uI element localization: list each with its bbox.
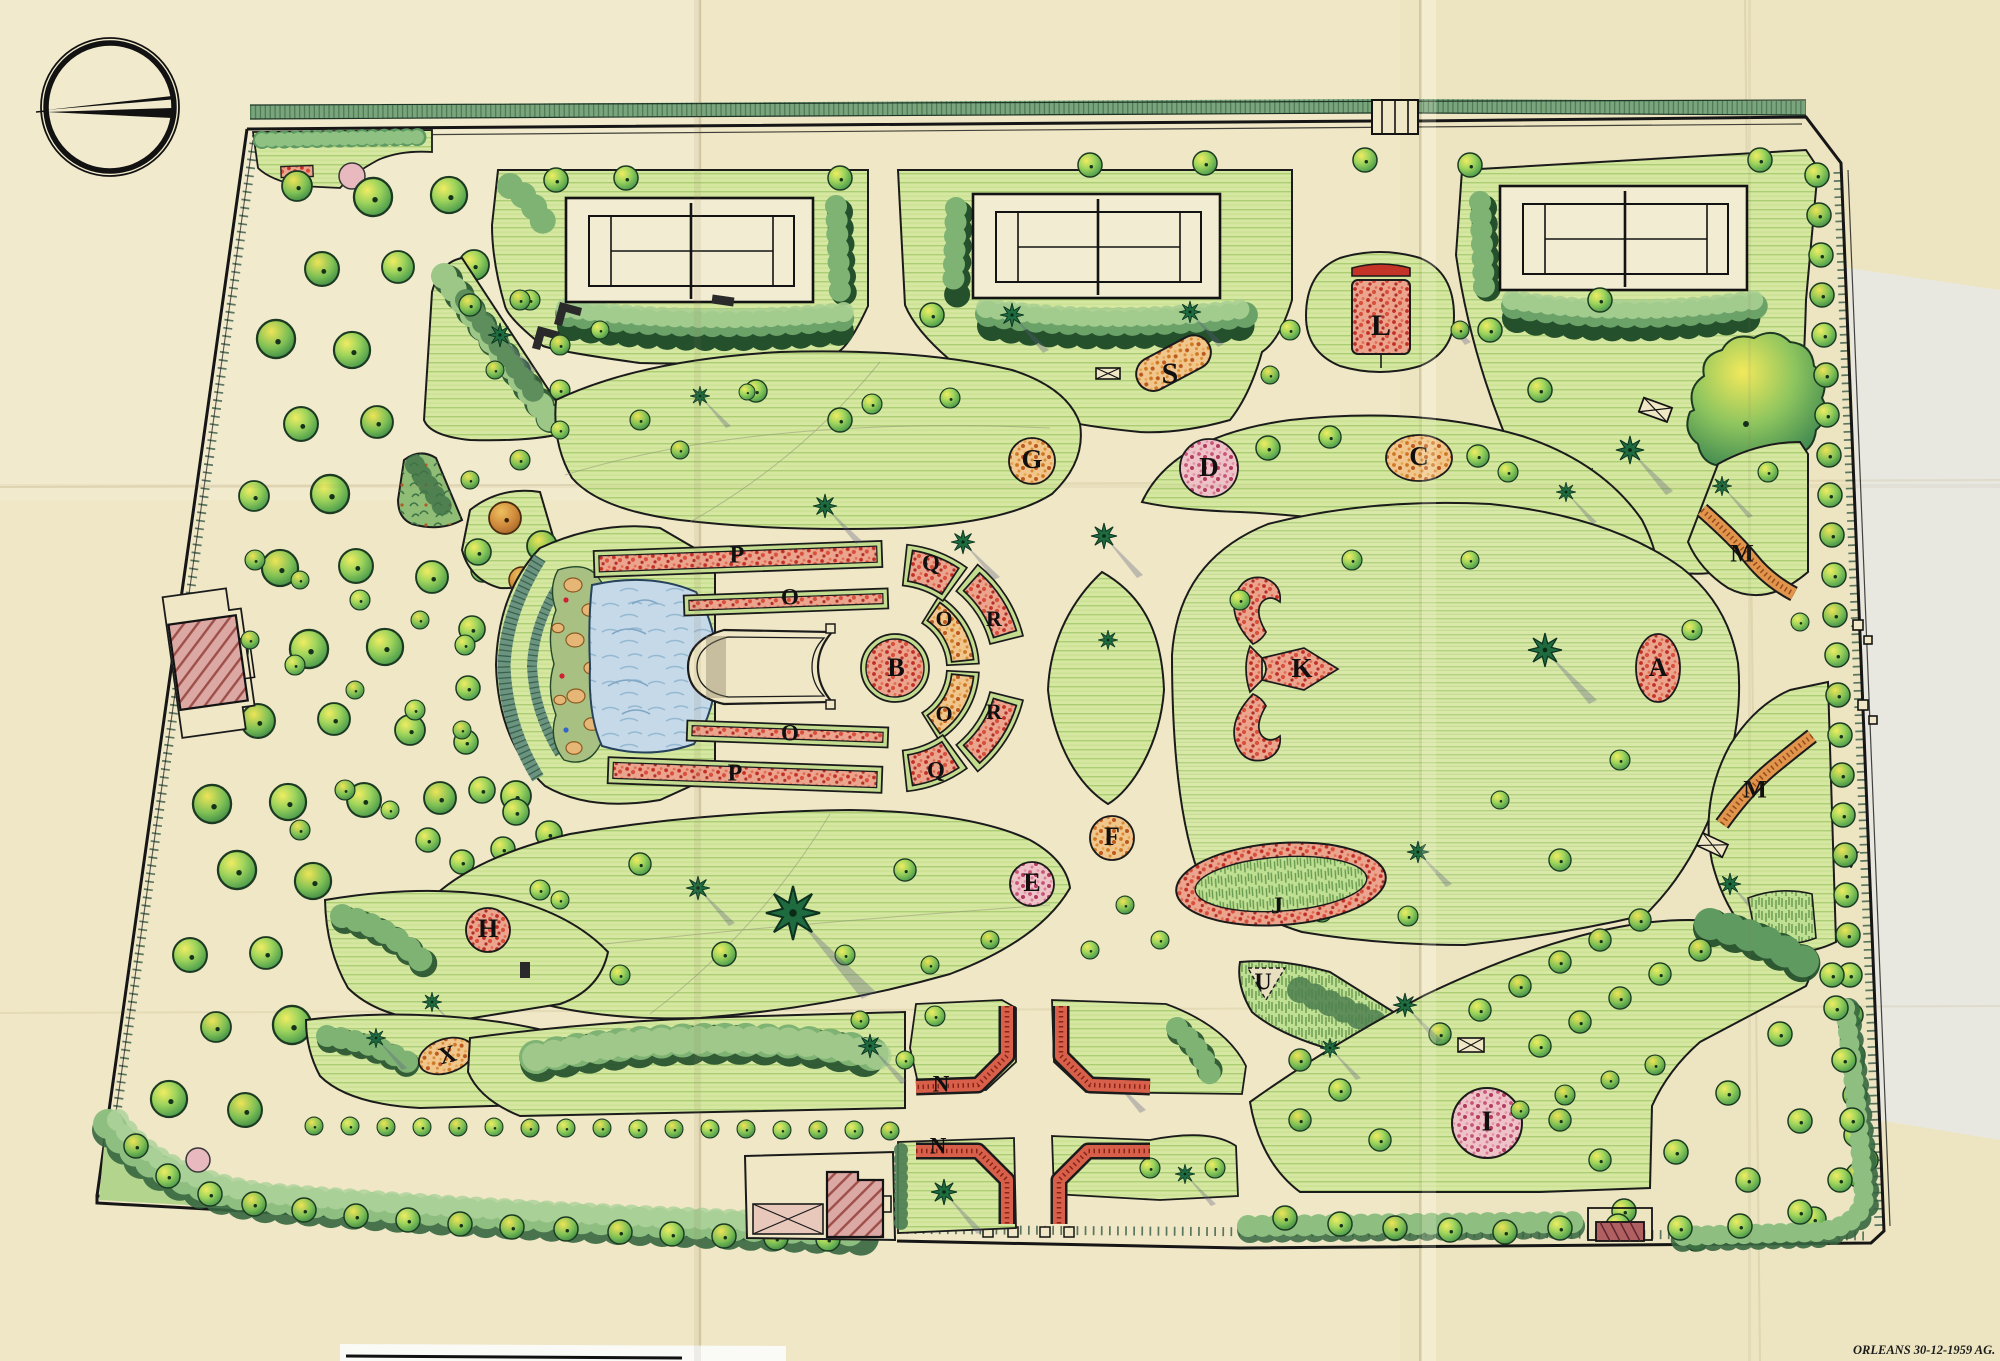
svg-text:J: J	[1271, 894, 1283, 920]
svg-text:O: O	[781, 584, 799, 609]
svg-text:U: U	[1254, 970, 1271, 996]
svg-text:E: E	[1023, 868, 1040, 897]
svg-text:N: N	[933, 1071, 950, 1096]
svg-text:P: P	[728, 761, 743, 787]
svg-text:Q: Q	[927, 757, 945, 782]
svg-text:I: I	[1482, 1106, 1493, 1137]
svg-text:O: O	[935, 606, 952, 631]
svg-text:F: F	[1104, 822, 1120, 851]
svg-text:G: G	[1021, 444, 1042, 474]
svg-text:O: O	[935, 701, 952, 726]
svg-text:R: R	[986, 699, 1003, 724]
svg-text:D: D	[1199, 452, 1219, 482]
svg-text:R: R	[986, 606, 1003, 631]
svg-text:O: O	[781, 720, 799, 745]
svg-text:P: P	[730, 543, 745, 569]
svg-text:N: N	[930, 1133, 947, 1158]
svg-text:ORLEANS 30-12-1959 AG.: ORLEANS 30-12-1959 AG.	[1853, 1343, 1995, 1357]
svg-text:Q: Q	[922, 550, 940, 575]
svg-text:H: H	[478, 914, 498, 943]
svg-text:A: A	[1649, 653, 1668, 682]
svg-text:L: L	[1371, 309, 1391, 342]
svg-text:S: S	[1162, 357, 1179, 390]
svg-text:K: K	[1291, 653, 1312, 683]
svg-text:B: B	[887, 653, 904, 682]
svg-text:M: M	[1743, 777, 1767, 804]
